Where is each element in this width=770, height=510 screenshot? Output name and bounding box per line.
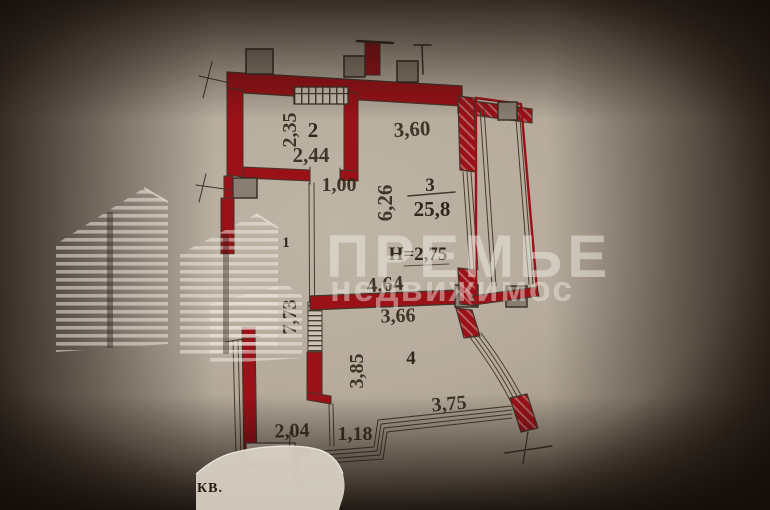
room3-area: 25,8 — [414, 197, 451, 221]
room-label-4: 4 — [406, 348, 416, 369]
watermark-text: ПРЕМЬЕ недвижимос — [326, 223, 612, 309]
dim-room3-side: 6,26 — [373, 185, 397, 222]
dim-room2-width: 2,44 — [293, 143, 330, 167]
dim-bottom-inner: 1,18 — [338, 423, 373, 445]
floorplan-svg: 2,35 2 2,44 1,00 3,60 6,26 3 25,8 Н=2,75… — [0, 0, 770, 510]
dim-room4-side: 3,85 — [346, 354, 368, 389]
dim-hall-door: 1,00 — [322, 174, 357, 196]
room-label-3: 3 — [425, 175, 435, 196]
room-label-1: 1 — [282, 235, 290, 251]
apartment-caption: КВ. — [197, 481, 223, 496]
floorplan-photo: 2,35 2 2,44 1,00 3,60 6,26 3 25,8 Н=2,75… — [0, 0, 770, 510]
dim-bottom-left: 2,04 — [274, 419, 310, 442]
room-label-2: 2 — [308, 118, 319, 142]
dim-balcony-edge: 3,75 — [431, 392, 468, 417]
room2-window — [294, 87, 348, 104]
dim-room3-top: 3,60 — [393, 116, 431, 142]
watermark-text-line2: недвижимос — [330, 268, 574, 309]
